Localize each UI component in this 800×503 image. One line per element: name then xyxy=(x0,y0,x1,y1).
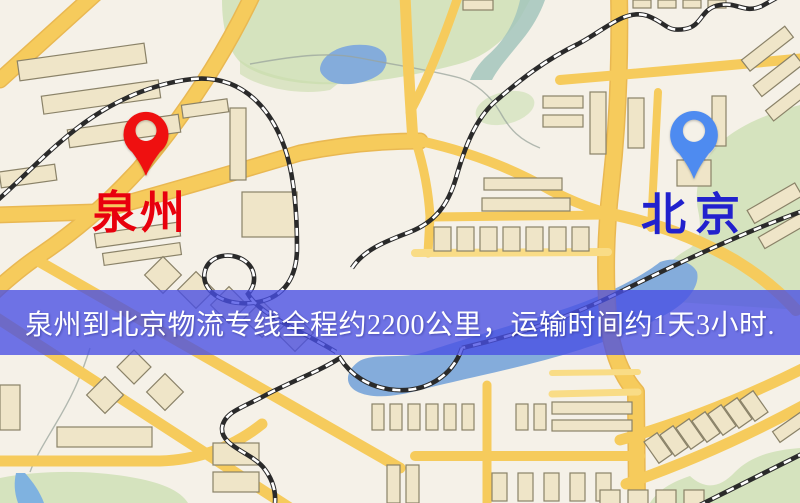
map-canvas xyxy=(0,0,800,503)
route-info-text: 泉州到北京物流专线全程约2200公里，运输时间约1天3小时. xyxy=(0,303,775,343)
origin-city-label: 泉州 xyxy=(92,176,188,241)
destination-pin-shape xyxy=(670,111,718,179)
route-info-banner: 泉州到北京物流专线全程约2200公里，运输时间约1天3小时. xyxy=(0,290,800,355)
origin-pin-shape xyxy=(124,112,169,176)
destination-pin-icon[interactable] xyxy=(662,96,726,179)
map-container[interactable]: 泉州 北京 泉州到北京物流专线全程约2200公里，运输时间约1天3小时. xyxy=(0,0,800,503)
origin-pin-icon[interactable] xyxy=(116,98,176,176)
destination-city-label: 北京 xyxy=(641,178,749,243)
